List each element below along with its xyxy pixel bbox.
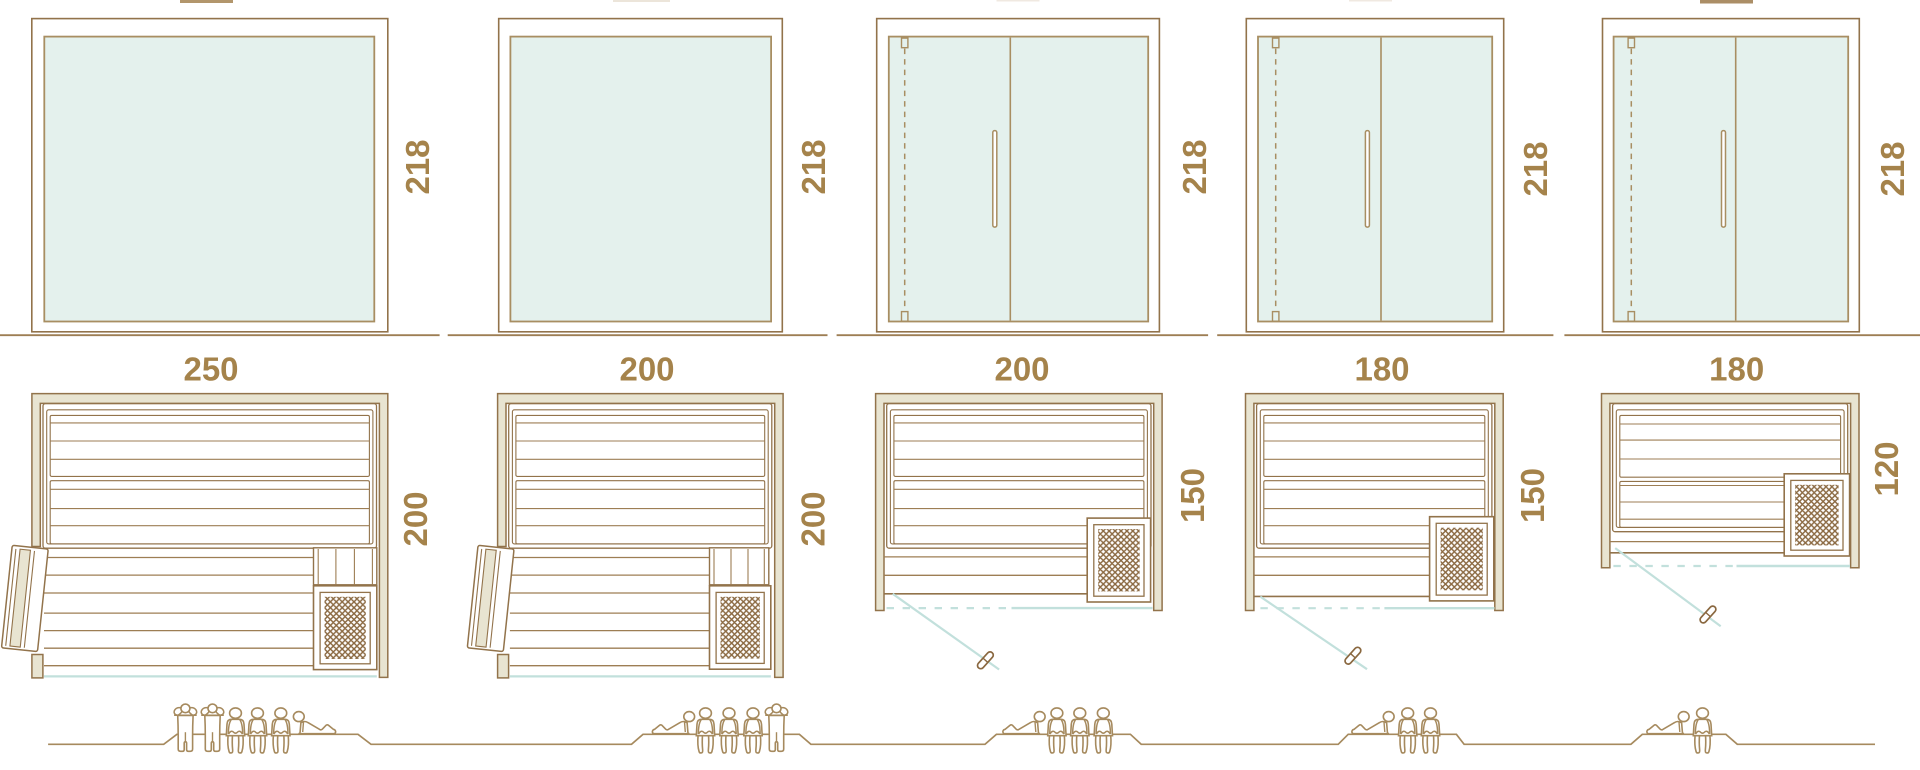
svg-text:120: 120	[1868, 441, 1905, 496]
svg-text:180: 180	[1709, 351, 1764, 388]
svg-text:200: 200	[397, 491, 434, 546]
svg-text:180: 180	[1354, 351, 1409, 388]
svg-text:218: 218	[795, 139, 832, 194]
svg-text:218: 218	[1874, 141, 1911, 196]
svg-text:250: 250	[183, 351, 238, 388]
svg-text:200: 200	[619, 351, 674, 388]
svg-text:150: 150	[1174, 468, 1211, 523]
svg-text:200: 200	[795, 491, 832, 546]
svg-text:218: 218	[399, 139, 436, 194]
svg-text:150: 150	[1514, 468, 1551, 523]
svg-text:218: 218	[1517, 141, 1554, 196]
svg-text:218: 218	[1176, 139, 1213, 194]
svg-text:200: 200	[994, 351, 1049, 388]
